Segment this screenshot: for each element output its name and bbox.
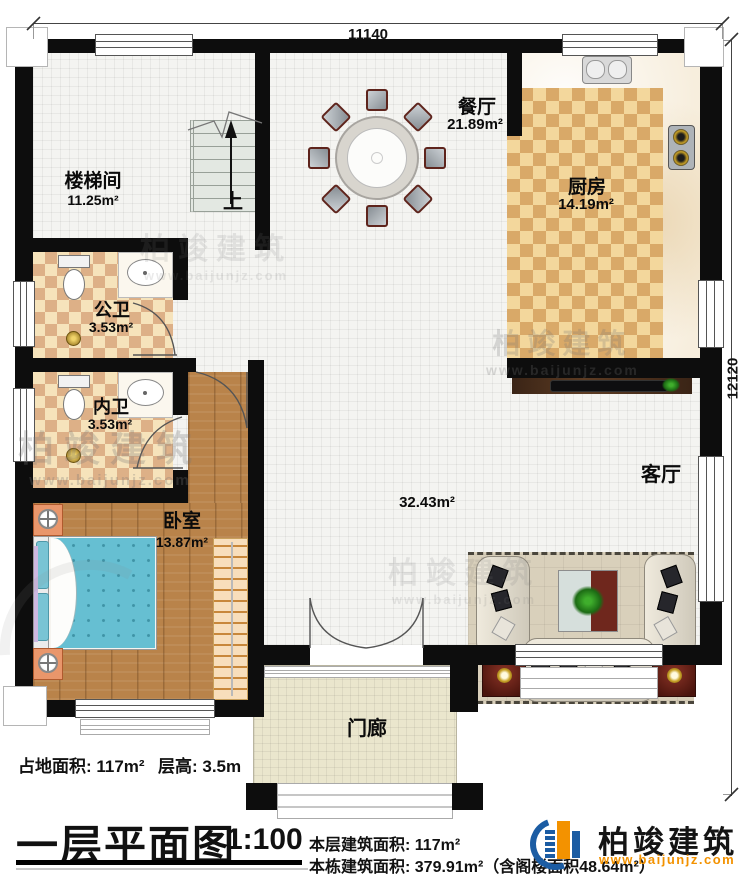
logo-building-bar bbox=[557, 821, 570, 859]
vestibule-floor bbox=[188, 372, 248, 503]
brand-url: www.baijunjz.com bbox=[599, 852, 735, 867]
room-area-stairwell: 11.25m² bbox=[67, 193, 118, 207]
window bbox=[698, 456, 724, 602]
land-area-text: 占地面积: 117m² bbox=[18, 752, 145, 777]
wall bbox=[507, 358, 703, 378]
console-plant bbox=[662, 378, 680, 392]
exterior-sill bbox=[3, 686, 47, 726]
room-area-kitchen: 14.19m² bbox=[558, 197, 614, 212]
dining-chair bbox=[366, 205, 388, 227]
title-underline-thin bbox=[16, 868, 308, 870]
stove-burner bbox=[673, 150, 689, 166]
floor-drain bbox=[66, 448, 81, 463]
room-label-inner-bath: 内卫 bbox=[93, 398, 129, 416]
end-table-lamp bbox=[667, 668, 682, 683]
wall bbox=[248, 360, 264, 717]
window bbox=[562, 34, 658, 56]
dimension-line-top bbox=[33, 23, 722, 24]
table-lamp bbox=[38, 653, 58, 673]
loveseat-left bbox=[476, 556, 530, 656]
dining-chair bbox=[308, 147, 330, 169]
room-area-inner-bath: 3.53m² bbox=[88, 417, 132, 431]
wall bbox=[507, 53, 522, 136]
room-area-living: 32.43m² bbox=[399, 495, 455, 510]
kitchen-floor bbox=[507, 88, 663, 358]
wall bbox=[15, 238, 188, 252]
porch-pillar bbox=[450, 663, 478, 712]
floor-area-text: 本层建筑面积: 117m² bbox=[309, 831, 460, 855]
dining-chair bbox=[424, 147, 446, 169]
window bbox=[95, 34, 193, 56]
porch-threshold bbox=[264, 666, 454, 678]
toilet-bowl bbox=[63, 389, 85, 420]
extension-line bbox=[723, 40, 731, 41]
window bbox=[13, 281, 35, 347]
porch-pillar bbox=[246, 783, 277, 810]
dimension-top: 11140 bbox=[348, 26, 388, 43]
room-label-kitchen: 厨房 bbox=[568, 178, 606, 197]
extension-line bbox=[723, 794, 731, 795]
logo-building-bar bbox=[545, 828, 555, 858]
kitchen-sink-basin bbox=[586, 60, 605, 79]
window bbox=[75, 699, 215, 718]
window bbox=[698, 280, 724, 348]
stairs-up-label: 上 bbox=[223, 192, 243, 212]
curtain bbox=[34, 546, 38, 642]
window bbox=[515, 644, 663, 666]
exterior-sill bbox=[684, 27, 724, 67]
porch-steps bbox=[277, 783, 453, 819]
room-label-living: 客厅 bbox=[641, 465, 681, 485]
sink-drain-dot bbox=[143, 271, 147, 275]
floor-height-text: 层高: 3.5m bbox=[158, 752, 241, 777]
room-label-porch: 门廊 bbox=[347, 719, 387, 739]
exterior-sill bbox=[6, 27, 48, 67]
toilet-bowl bbox=[63, 269, 85, 300]
porch-pillar bbox=[452, 783, 483, 810]
wall bbox=[15, 358, 196, 372]
extension-line bbox=[722, 24, 723, 39]
dimension-line-right bbox=[731, 39, 732, 796]
window-sill bbox=[520, 667, 658, 699]
loveseat-right bbox=[644, 554, 696, 656]
room-label-public-bath: 公卫 bbox=[94, 301, 130, 319]
logo-building-bar bbox=[572, 831, 580, 858]
coffee-table-plant bbox=[572, 586, 604, 616]
tv bbox=[550, 380, 668, 392]
table-lamp bbox=[38, 509, 58, 529]
room-label-dining: 餐厅 bbox=[458, 98, 496, 117]
toilet-tank bbox=[58, 375, 90, 388]
end-table-lamp bbox=[497, 668, 512, 683]
room-area-bedroom: 13.87m² bbox=[156, 535, 208, 549]
title-underline bbox=[16, 860, 302, 865]
room-label-stairwell: 楼梯间 bbox=[64, 172, 121, 191]
sink-drain-dot bbox=[143, 391, 147, 395]
wall bbox=[15, 39, 33, 717]
dining-table-center bbox=[371, 152, 383, 164]
window bbox=[13, 388, 35, 462]
floor-drain bbox=[66, 331, 81, 346]
wall bbox=[663, 645, 722, 665]
wall bbox=[423, 645, 515, 665]
floor-plan-sheet: 11140 12120 柏竣建筑 www.baiju bbox=[0, 0, 750, 883]
dining-chair bbox=[366, 89, 388, 111]
stove-burner bbox=[673, 129, 689, 145]
room-area-public-bath: 3.53m² bbox=[89, 320, 133, 334]
wall bbox=[173, 238, 188, 300]
wardrobe bbox=[213, 538, 248, 700]
brand-logo-icon bbox=[530, 812, 592, 876]
window-sill bbox=[80, 719, 210, 735]
wall bbox=[264, 645, 310, 665]
extension-line bbox=[33, 24, 34, 39]
room-label-bedroom: 卧室 bbox=[163, 512, 201, 531]
plan-scale: 1:100 bbox=[226, 823, 303, 857]
kitchen-sink-basin bbox=[608, 60, 627, 79]
logo-swoosh bbox=[521, 809, 590, 878]
room-area-dining: 21.89m² bbox=[447, 117, 503, 132]
wall bbox=[15, 488, 188, 503]
wall bbox=[255, 53, 270, 250]
toilet-tank bbox=[58, 255, 90, 268]
dimension-right: 12120 bbox=[724, 358, 741, 400]
